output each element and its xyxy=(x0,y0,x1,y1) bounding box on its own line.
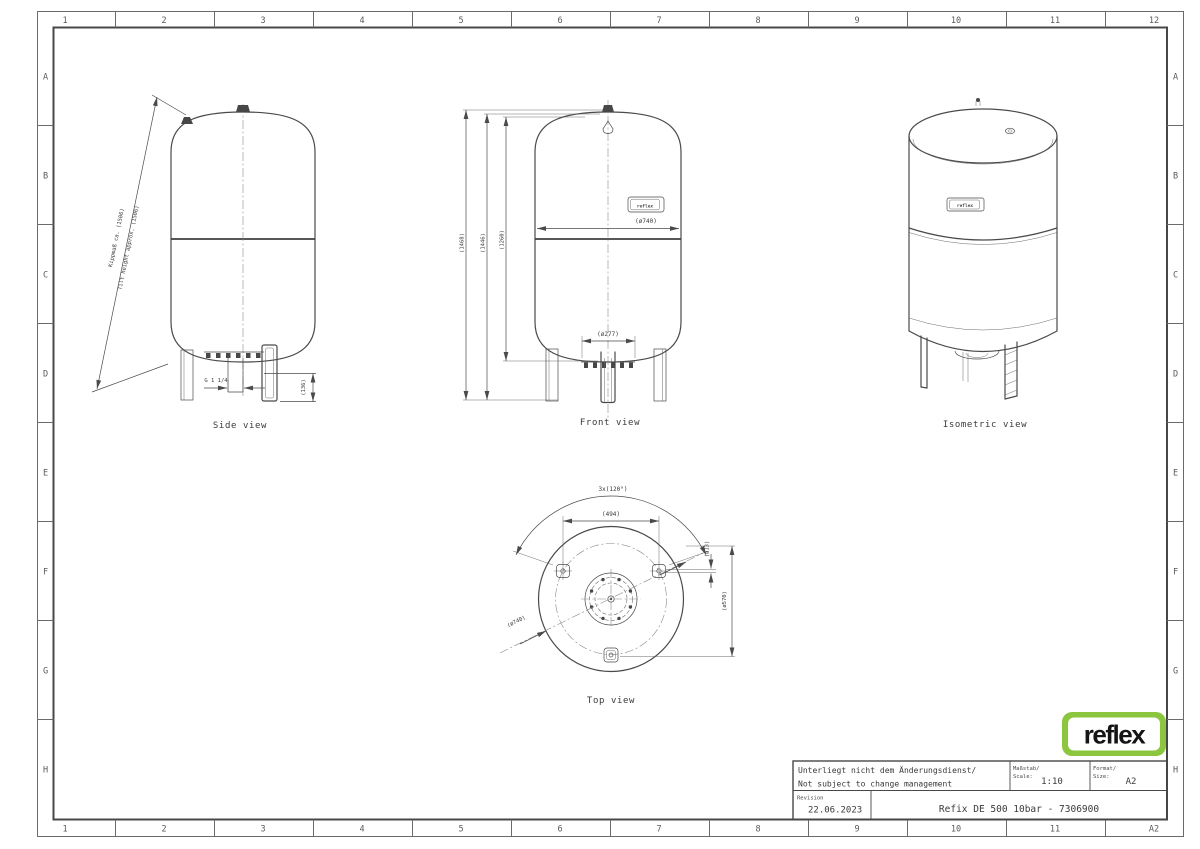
top-foot-upper-left xyxy=(554,562,572,580)
title-block-note-en: Not subject to change management xyxy=(798,780,952,789)
grid-col-label-top: 6 xyxy=(557,16,562,26)
iso-weld-seam xyxy=(909,228,1057,240)
iso-nameplate-text: reflex xyxy=(957,203,974,209)
front-flange-bolts xyxy=(584,363,633,369)
top-arc-ext-left xyxy=(513,551,553,565)
iso-bottom-dome xyxy=(909,331,1057,352)
isometric-view-caption: Isometric view xyxy=(943,420,1027,430)
grid-row-label-right: E xyxy=(1173,469,1178,479)
grid-col-label-bottom: 4 xyxy=(359,825,364,835)
front-flange-diameter-label: (ø277) xyxy=(597,331,619,338)
isometric-view: reflex Isometric view xyxy=(909,98,1057,430)
side-flange-bolts xyxy=(206,353,261,358)
grid-corner-label: A2 xyxy=(1149,825,1159,835)
iso-top-rim-inner xyxy=(913,139,1053,164)
top-foot-upper-right xyxy=(650,562,668,580)
top-view-caption: Top view xyxy=(587,696,635,706)
grid-col-label-top: 8 xyxy=(755,16,760,26)
grid-col-label-bottom: 10 xyxy=(951,825,961,835)
side-top-fitting-center xyxy=(236,105,250,112)
grid-col-label-bottom: 9 xyxy=(854,825,859,835)
grid-row-label-left: F xyxy=(43,568,48,578)
grid-col-label-bottom: 8 xyxy=(755,825,760,835)
grid-col-label-bottom: 6 xyxy=(557,825,562,835)
logo-text: reflex xyxy=(1084,720,1146,750)
front-leg-left xyxy=(546,349,558,401)
title-block: Unterliegt nicht dem Änderungsdienst/ No… xyxy=(793,761,1167,820)
side-foot-plate-inner xyxy=(266,348,274,398)
iso-lower-seam xyxy=(909,318,1057,330)
front-view: reflex (ø740) (ø277) (1468) (1446 xyxy=(460,100,682,428)
grid-row-label-left: C xyxy=(43,271,48,281)
front-overall-height-label: (1468) xyxy=(460,233,466,253)
scale-label-de: Maßstab/ xyxy=(1013,766,1040,772)
side-connection-stub xyxy=(228,358,243,392)
grid-col-label-top: 9 xyxy=(854,16,859,26)
front-diameter-label: (ø740) xyxy=(635,218,657,225)
grid-col-label-top: 5 xyxy=(458,16,463,26)
grid-col-label-top: 4 xyxy=(359,16,364,26)
format-label-de: Format/ xyxy=(1093,766,1116,772)
grid-col-label-top: 10 xyxy=(951,16,961,26)
front-nameplate-text: reflex xyxy=(637,204,654,210)
grid-col-label-top: 7 xyxy=(656,16,661,26)
top-view: (ø740) 3x(120°) (494) (ø1 xyxy=(500,486,735,706)
front-vessel-height-label: (1446) xyxy=(481,233,487,253)
grid-col-label-top: 12 xyxy=(1149,16,1159,26)
grid-col-label-bottom: 7 xyxy=(656,825,661,835)
grid-col-label-top: 2 xyxy=(161,16,166,26)
title-block-note-de: Unterliegt nicht dem Änderungsdienst/ xyxy=(798,765,976,775)
grid-col-label-top: 1 xyxy=(62,16,67,26)
top-740-arrow-left xyxy=(520,631,546,644)
grid-row-label-right: G xyxy=(1173,667,1178,677)
grid-row-label-right: H xyxy=(1173,766,1178,776)
side-connection-dim-label: G 1 1/4 xyxy=(204,378,228,384)
iso-top-port-inner xyxy=(1008,130,1012,132)
front-top-fitting xyxy=(602,105,614,112)
grid-row-label-left: B xyxy=(43,172,48,182)
grid-col-label-bottom: 1 xyxy=(62,825,67,835)
grid-col-label-top: 3 xyxy=(260,16,265,26)
revision-date: 22.06.2023 xyxy=(808,806,862,816)
grid-row-label-right: D xyxy=(1173,370,1178,380)
grid-col-label-bottom: 11 xyxy=(1050,825,1060,835)
grid-row-label-left: E xyxy=(43,469,48,479)
grid-row-label-left: D xyxy=(43,370,48,380)
reflex-logo: reflex xyxy=(1062,712,1166,756)
grid-row-label-right: B xyxy=(1173,172,1178,182)
format-label-en: Size: xyxy=(1093,774,1110,780)
top-feet-angle-label: 3x(120°) xyxy=(599,486,628,493)
grid-col-label-top: 11 xyxy=(1050,16,1060,26)
iso-top-port xyxy=(1006,128,1015,134)
document-title: Refix DE 500 10bar - 7306900 xyxy=(939,804,1099,815)
grid-row-label-right: C xyxy=(1173,271,1178,281)
top-hole-diameter-label: (ø13) xyxy=(705,541,711,558)
top-feet-spacing-label: (494) xyxy=(602,511,620,518)
top-740-arrow-right xyxy=(660,562,686,575)
iso-leg-back xyxy=(963,352,968,382)
grid-col-label-bottom: 3 xyxy=(260,825,265,835)
front-connection-height-label: (1260) xyxy=(500,230,506,250)
iso-bottom-flange xyxy=(955,351,999,359)
grid-row-label-left: G xyxy=(43,667,48,677)
engineering-drawing-sheet: 1122334455667788991010111112A2AABBCCDDEE… xyxy=(0,0,1200,849)
side-tilt-ext-bottom xyxy=(92,364,168,392)
side-view: Kippmaß ca. (1506) Tilt height approx. (… xyxy=(92,95,316,431)
side-foot-plate xyxy=(262,345,277,401)
grid-row-label-left: H xyxy=(43,766,48,776)
iso-leg-right-hatch xyxy=(1005,350,1017,395)
side-leg-left xyxy=(181,350,193,400)
top-feet-circle-label: (ø570) xyxy=(722,591,728,611)
scale-label-en: Scale: xyxy=(1013,774,1033,780)
side-leg-height-label: (136) xyxy=(301,379,307,396)
side-top-fitting-left xyxy=(181,117,193,124)
front-leg-right xyxy=(654,349,666,401)
iso-bottom-flange-inner xyxy=(966,353,988,358)
iso-top-rim xyxy=(909,109,1057,163)
top-angle-arc xyxy=(516,496,706,555)
side-view-caption: Side view xyxy=(213,421,267,431)
scale-value: 1:10 xyxy=(1041,777,1063,787)
iso-leg-left xyxy=(921,336,927,388)
top-arc-ext-right xyxy=(669,551,709,565)
revision-label: Revision xyxy=(797,796,824,802)
top-foot-bottom xyxy=(604,648,618,662)
iso-air-valve xyxy=(976,98,980,102)
grid-col-label-bottom: 5 xyxy=(458,825,463,835)
grid-row-label-right: A xyxy=(1173,73,1178,83)
format-value: A2 xyxy=(1126,777,1137,787)
front-view-caption: Front view xyxy=(580,418,640,428)
grid-col-label-bottom: 2 xyxy=(161,825,166,835)
top-diameter-label: (ø740) xyxy=(506,615,526,629)
grid-row-label-right: F xyxy=(1173,568,1178,578)
grid-row-label-left: A xyxy=(43,73,48,83)
